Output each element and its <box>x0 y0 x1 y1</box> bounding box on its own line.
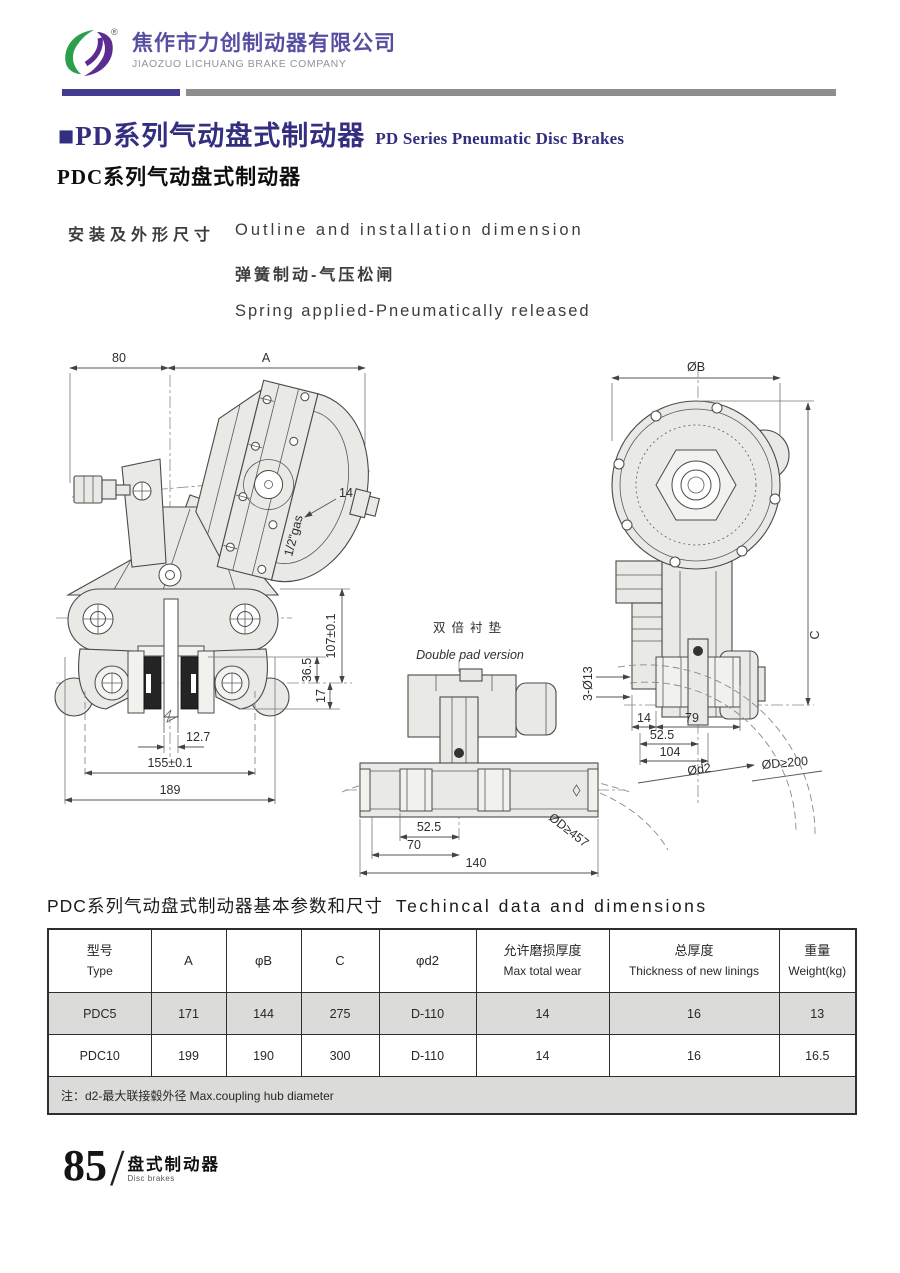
dim-side-104: 104 <box>660 745 681 759</box>
dim-12-7: 12.7 <box>186 730 210 744</box>
cell: PDC5 <box>48 993 151 1035</box>
base-bolt-right <box>230 604 260 634</box>
pivot-left <box>95 666 129 700</box>
dim-side-14: 14 <box>637 711 651 725</box>
install-label-cn: 安装及外形尺寸 <box>68 221 215 245</box>
series-subtitle: PDC系列气动盘式制动器 <box>57 161 301 191</box>
col-c: C <box>301 929 379 993</box>
dim-189: 189 <box>160 783 181 797</box>
cell: D-110 <box>379 993 476 1035</box>
dim-dp-70: 70 <box>407 838 421 852</box>
dim-14-front: 14 <box>339 486 353 500</box>
cell: 275 <box>301 993 379 1035</box>
table-note-row: 注：d2-最大联接毂外径 Max.coupling hub diameter <box>48 1077 856 1115</box>
table-note: 注：d2-最大联接毂外径 Max.coupling hub diameter <box>48 1077 856 1115</box>
footer-slash: / <box>110 1144 124 1193</box>
dim-C: C <box>808 630 822 639</box>
cell: 144 <box>226 993 301 1035</box>
adjuster-bolt <box>74 476 130 503</box>
cell: 14 <box>476 1035 609 1077</box>
company-logo-icon: ® <box>60 24 124 82</box>
dim-dp-52-5: 52.5 <box>417 820 441 834</box>
cell: PDC10 <box>48 1035 151 1077</box>
dim-36-5: 36.5 <box>300 658 314 682</box>
install-label-en: Outline and installation dimension <box>235 221 584 240</box>
base-bolt-left <box>83 604 113 634</box>
cell: 16.5 <box>779 1035 856 1077</box>
col-phib: φB <box>226 929 301 993</box>
cell: 199 <box>151 1035 226 1077</box>
cell: 14 <box>476 993 609 1035</box>
cell: 171 <box>151 993 226 1035</box>
pivot-right <box>215 666 249 700</box>
catalog-page: ® 焦作市力创制动器有限公司 JIAOZUO LICHUANG BRAKE CO… <box>0 0 900 1273</box>
cell: 13 <box>779 993 856 1035</box>
side-view-drawing: ØB <box>581 360 822 837</box>
spring-mode-en: Spring applied-Pneumatically released <box>235 302 591 321</box>
pivot-plate <box>122 459 166 567</box>
dim-3-o13: 3-Ø13 <box>581 666 595 701</box>
spec-table: 型号Type A φB C φd2 允许磨损厚度Max total wear 总… <box>47 928 857 1115</box>
dim-dp-140: 140 <box>466 856 487 870</box>
pad-holder-left <box>128 651 144 713</box>
page-footer: 85 / 盘式制动器 Disc brakes <box>63 1144 220 1193</box>
dim-17: 17 <box>314 689 328 703</box>
company-name-en: JIAOZUO LICHUANG BRAKE COMPANY <box>132 58 396 70</box>
page-number: 85 <box>63 1144 107 1188</box>
registered-mark: ® <box>111 27 118 37</box>
page-title-cn: ■PD系列气动盘式制动器 <box>58 122 365 152</box>
dim-d2: Ød2 <box>686 761 711 778</box>
table-header-row: 型号Type A φB C φd2 允许磨损厚度Max total wear 总… <box>48 929 856 993</box>
footer-section: 盘式制动器 Disc brakes <box>127 1156 220 1183</box>
cell: 16 <box>609 993 779 1035</box>
page-title-en: PD Series Pneumatic Disc Brakes <box>375 129 624 149</box>
table-row-pdc5: PDC5 171 144 275 D-110 14 16 13 <box>48 993 856 1035</box>
table-row-pdc10: PDC10 199 190 300 D-110 14 16 16.5 <box>48 1035 856 1077</box>
technical-drawings: 80 A <box>40 345 900 890</box>
double-pad-title-en: Double pad version <box>416 648 524 662</box>
roller-left <box>656 657 688 707</box>
dim-phiB: ØB <box>687 360 705 374</box>
spring-mode-cn: 弹簧制动-气压松闸 <box>235 261 395 285</box>
roller-right <box>708 657 740 707</box>
col-type: 型号Type <box>48 929 151 993</box>
col-phid2: φd2 <box>379 929 476 993</box>
cell: 190 <box>226 1035 301 1077</box>
dim-155: 155±0.1 <box>147 756 192 770</box>
table-title-cn: PDC系列气动盘式制动器基本参数和尺寸 <box>47 896 383 916</box>
col-a: A <box>151 929 226 993</box>
table-title-en: Techincal data and dimensions <box>396 896 708 916</box>
dp-pad-right <box>478 769 510 811</box>
company-name-cn: 焦作市力创制动器有限公司 <box>132 32 396 56</box>
footer-section-cn: 盘式制动器 <box>127 1156 220 1174</box>
cell: 300 <box>301 1035 379 1077</box>
dim-A: A <box>262 351 271 365</box>
footer-section-en: Disc brakes <box>127 1174 220 1183</box>
page-title: ■PD系列气动盘式制动器 PD Series Pneumatic Disc Br… <box>58 122 624 152</box>
header-rule-gray <box>186 89 836 96</box>
header: ® 焦作市力创制动器有限公司 JIAOZUO LICHUANG BRAKE CO… <box>60 24 396 82</box>
brake-disc <box>164 599 178 717</box>
company-name-block: 焦作市力创制动器有限公司 JIAOZUO LICHUANG BRAKE COMP… <box>132 32 396 70</box>
dim-side-79: 79 <box>685 711 699 725</box>
col-max-wear: 允许磨损厚度Max total wear <box>476 929 609 993</box>
dp-pad-left <box>400 769 432 811</box>
col-weight: 重量Weight(kg) <box>779 929 856 993</box>
dim-107: 107±0.1 <box>324 613 338 658</box>
dim-80: 80 <box>112 351 126 365</box>
front-view-drawing: 80 A <box>55 351 400 804</box>
dim-side-52-5: 52.5 <box>650 728 674 742</box>
double-pad-title-cn: 双倍衬垫 <box>433 620 507 635</box>
double-pad-view-drawing: 双倍衬垫 Double pad version <box>342 620 668 877</box>
header-rule-purple <box>62 89 180 96</box>
table-title: PDC系列气动盘式制动器基本参数和尺寸 Techincal data and d… <box>47 893 708 918</box>
cell: 16 <box>609 1035 779 1077</box>
dp-cylinder <box>516 683 556 735</box>
col-thickness: 总厚度Thickness of new linings <box>609 929 779 993</box>
cell: D-110 <box>379 1035 476 1077</box>
pad-holder-right <box>198 651 214 713</box>
